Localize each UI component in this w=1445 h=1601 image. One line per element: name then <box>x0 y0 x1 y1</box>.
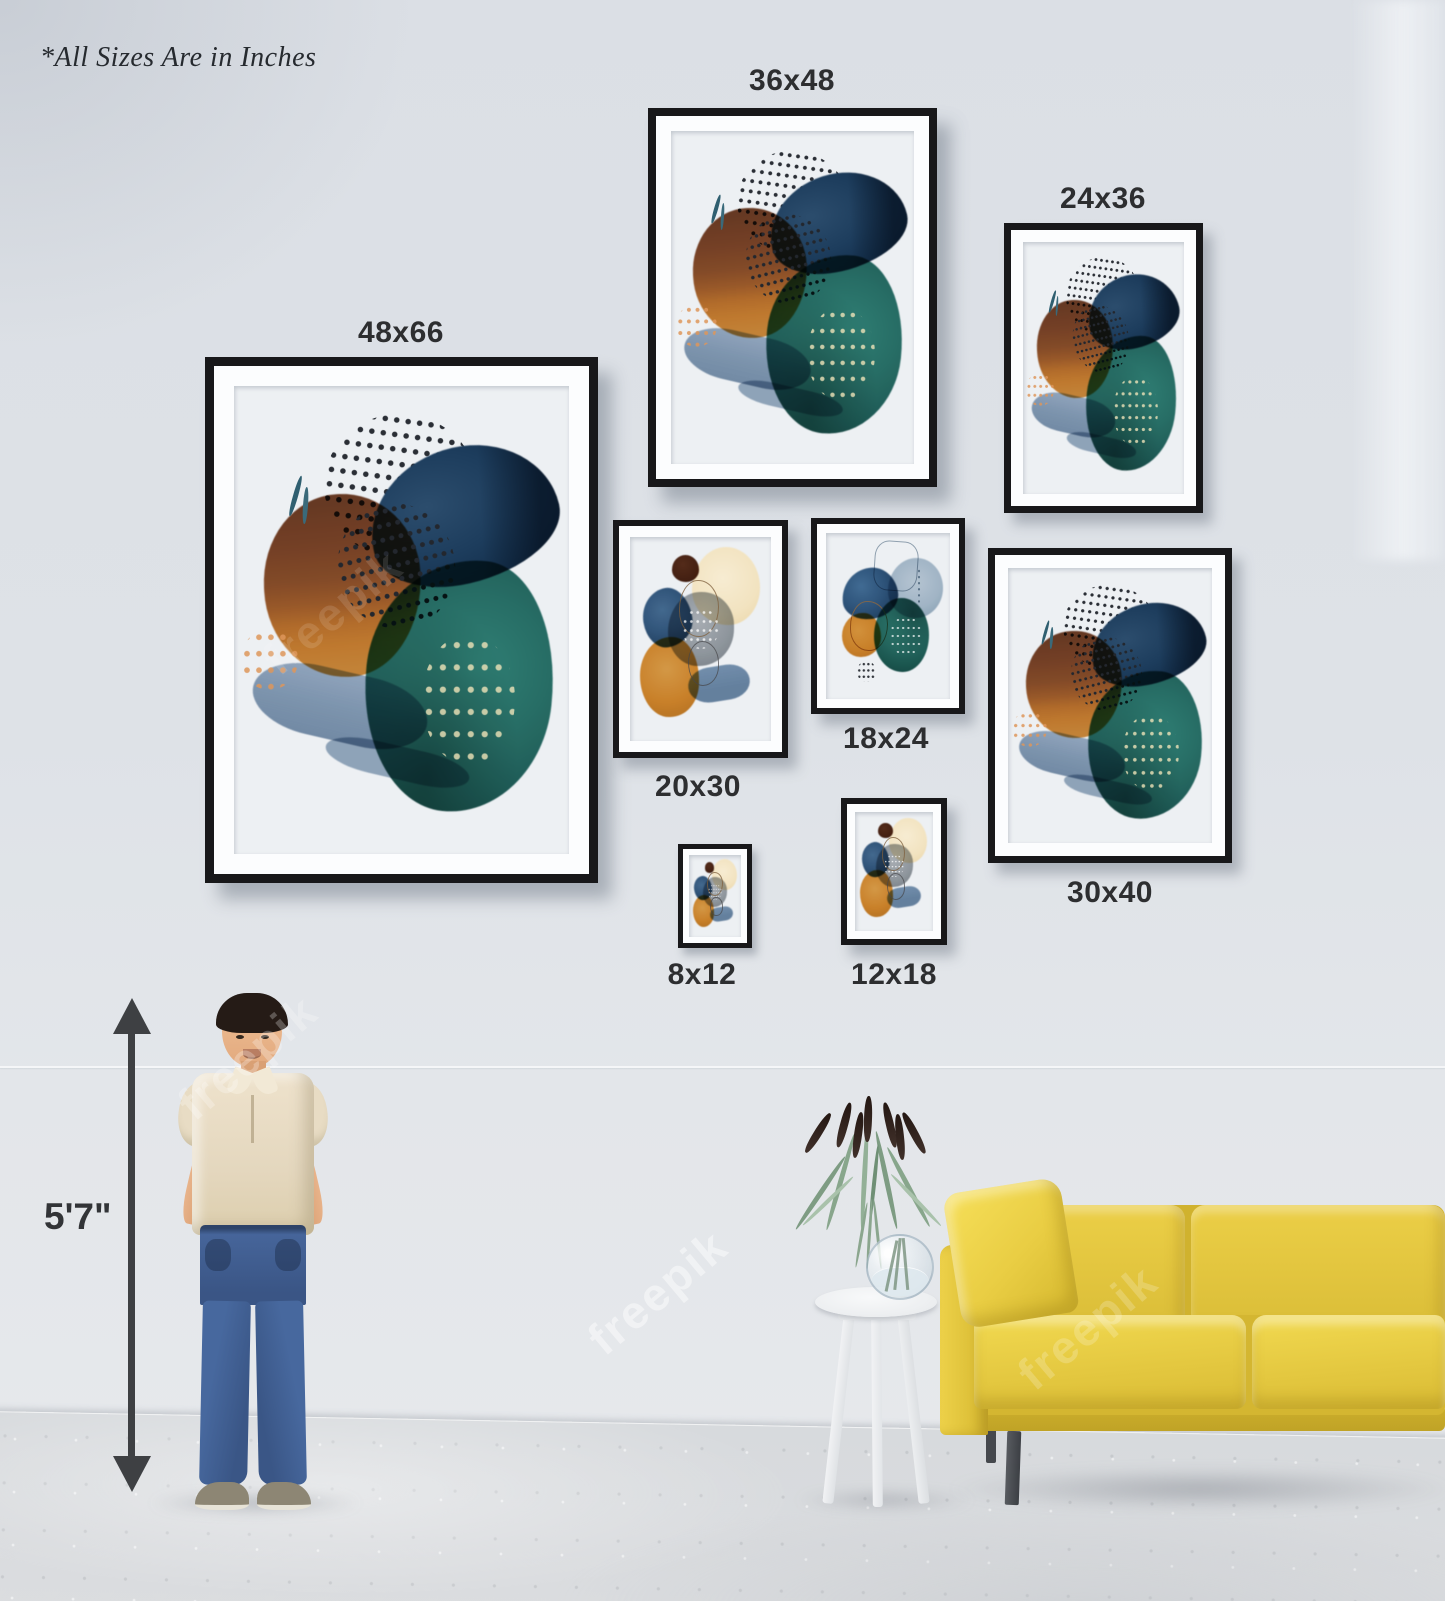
size-label-8x12: 8x12 <box>668 958 737 992</box>
sofa-pillow <box>942 1177 1080 1330</box>
size-label-30x40: 30x40 <box>1067 876 1153 910</box>
sofa-leg <box>1005 1431 1022 1505</box>
frame-12x18 <box>841 798 947 945</box>
size-label-48x66: 48x66 <box>358 316 444 350</box>
watermark: freepik <box>577 1218 738 1365</box>
height-arrow-line <box>128 1030 135 1460</box>
frame-8x12 <box>678 844 752 948</box>
orange-speckles <box>1026 373 1053 406</box>
dotted-column <box>917 568 922 606</box>
shirt-placket <box>251 1095 254 1143</box>
artwork-abstract-watercolor <box>1023 242 1184 494</box>
arrow-up-icon <box>113 998 151 1034</box>
orange-speckles <box>1012 711 1047 747</box>
artwork-abstract-watercolor <box>671 131 914 464</box>
gold-speckles <box>422 634 516 765</box>
white-speckles <box>890 616 922 656</box>
yellow-sofa <box>940 1185 1445 1515</box>
artwork-abstract-watercolor <box>630 537 771 741</box>
artwork-abstract-watercolor <box>234 386 569 854</box>
orange-speckles <box>241 629 298 690</box>
person-height-label: 5'7" <box>44 1196 112 1238</box>
arrow-down-icon <box>113 1456 151 1492</box>
brown-dot <box>672 555 699 582</box>
plant <box>812 1104 938 1254</box>
artwork-abstract-watercolor <box>1008 568 1212 843</box>
sneaker <box>195 1482 249 1510</box>
glass-vase <box>866 1234 934 1300</box>
sofa-seat-cushion <box>974 1315 1246 1409</box>
gold-speckles <box>1122 714 1179 791</box>
size-label-12x18: 12x18 <box>851 958 937 992</box>
artwork-abstract-watercolor <box>689 855 741 937</box>
table-leg <box>871 1317 883 1507</box>
frame-48x66 <box>205 357 598 883</box>
jeans-leg <box>199 1301 251 1486</box>
frame-24x36 <box>1004 223 1203 513</box>
white-speckles <box>708 884 722 900</box>
frame-30x40 <box>988 548 1232 863</box>
eye <box>261 1035 269 1039</box>
sofa-seat-cushion <box>1252 1315 1445 1409</box>
sneaker <box>257 1482 311 1510</box>
size-label-18x24: 18x24 <box>843 722 929 756</box>
frame-36x48 <box>648 108 937 487</box>
size-label-20x30: 20x30 <box>655 770 741 804</box>
vase-water <box>871 1267 929 1295</box>
hair <box>216 993 288 1033</box>
frame-18x24 <box>811 518 965 714</box>
gold-speckles <box>1113 376 1158 447</box>
size-label-36x48: 36x48 <box>749 64 835 98</box>
artwork-abstract-watercolor <box>855 812 933 931</box>
white-speckles <box>682 608 719 649</box>
size-label-24x36: 24x36 <box>1060 182 1146 216</box>
wall-art-size-chart: *All Sizes Are in Inches <box>0 0 1445 1601</box>
dots-cluster <box>857 661 876 683</box>
frame-20x30 <box>613 520 788 758</box>
artwork-abstract-watercolor <box>826 533 950 699</box>
sizes-note: *All Sizes Are in Inches <box>40 42 316 74</box>
jeans-pocket <box>275 1239 301 1271</box>
leaf <box>890 1173 943 1228</box>
jeans-leg <box>255 1301 307 1486</box>
brown-dot <box>878 823 893 838</box>
smile <box>243 1049 261 1059</box>
wall-light-streak <box>1350 0 1445 560</box>
wheat-spike <box>802 1111 833 1154</box>
jeans-pocket <box>205 1239 231 1271</box>
eye <box>236 1035 244 1039</box>
wheat-spike <box>863 1096 873 1142</box>
man-for-scale <box>158 995 348 1507</box>
gold-speckles <box>807 307 875 400</box>
